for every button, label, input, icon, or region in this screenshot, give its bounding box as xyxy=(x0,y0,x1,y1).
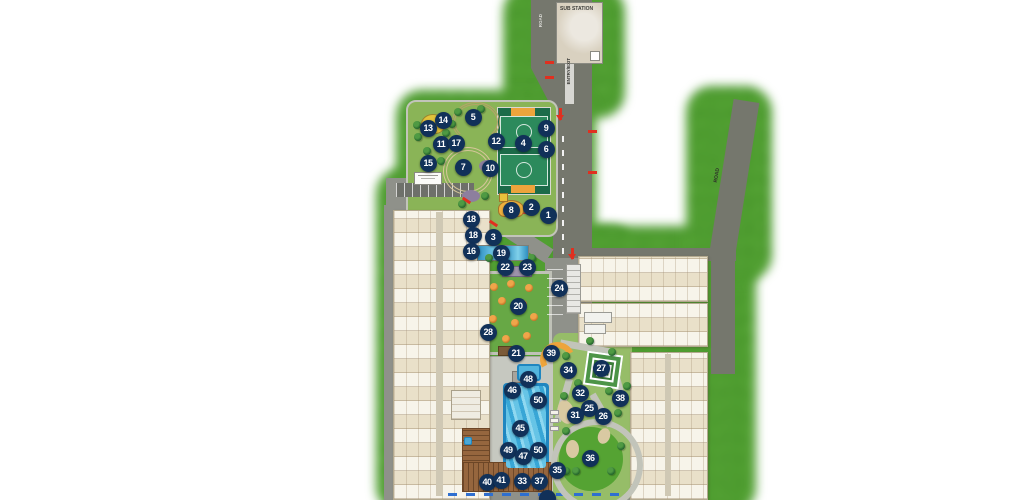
flowering-tree-icon xyxy=(502,335,510,343)
tree-icon xyxy=(623,382,631,390)
map-marker-4: 4 xyxy=(515,135,532,152)
map-marker-9: 9 xyxy=(538,120,555,137)
center-dashed-line xyxy=(562,128,564,254)
map-marker-17: 17 xyxy=(448,135,465,152)
east-corridor xyxy=(665,354,671,496)
map-marker-38: 38 xyxy=(612,390,629,407)
map-marker-35: 35 xyxy=(549,462,566,479)
tree-icon xyxy=(423,147,431,155)
map-marker-10: 10 xyxy=(482,160,499,177)
map-marker-37: 37 xyxy=(531,473,548,490)
clubhouse xyxy=(451,390,481,420)
tree-icon xyxy=(414,133,422,141)
map-marker-49: 49 xyxy=(500,442,517,459)
yellow-kiosk xyxy=(499,193,508,202)
tree-icon xyxy=(614,409,622,417)
court-cap xyxy=(511,185,535,193)
flowering-tree-icon xyxy=(489,315,497,323)
map-marker-3: 3 xyxy=(485,229,502,246)
map-marker-28: 28 xyxy=(480,324,497,341)
pool-lounger xyxy=(550,426,559,431)
basement-ramp xyxy=(566,264,581,314)
map-marker-32: 32 xyxy=(572,385,589,402)
sub-station-block: SUB STATION xyxy=(556,2,603,64)
flowering-tree-icon xyxy=(498,297,506,305)
flowering-tree-icon xyxy=(523,332,531,340)
building-north-east-a xyxy=(578,256,708,302)
red-dash xyxy=(545,61,554,64)
map-marker-34: 34 xyxy=(560,362,577,379)
map-marker-39: 39 xyxy=(543,345,560,362)
ramp-arrow xyxy=(571,248,574,259)
tree-icon xyxy=(454,108,462,116)
entry-exit-label: ENTRY/EXIT xyxy=(566,58,571,84)
vehicle xyxy=(584,324,606,334)
map-marker-36: 36 xyxy=(582,450,599,467)
flowering-tree-icon xyxy=(490,283,498,291)
map-marker-22: 22 xyxy=(497,259,514,276)
map-marker-45: 45 xyxy=(512,420,529,437)
spa-tub xyxy=(464,437,472,445)
road-top-label: ROAD xyxy=(538,14,543,27)
map-marker-31: 31 xyxy=(567,407,584,424)
tree-icon xyxy=(607,467,615,475)
tree-icon xyxy=(458,200,466,208)
map-marker-41: 41 xyxy=(493,472,510,489)
map-marker-33: 33 xyxy=(514,473,531,490)
map-marker-50: 50 xyxy=(530,392,547,409)
map-marker-13: 13 xyxy=(420,120,437,137)
tree-icon xyxy=(605,387,613,395)
tree-icon xyxy=(562,427,570,435)
tree-icon xyxy=(562,352,570,360)
map-marker-23: 23 xyxy=(519,259,536,276)
court-cap xyxy=(511,108,535,116)
red-dash xyxy=(545,76,554,79)
map-marker-7: 7 xyxy=(455,159,472,176)
map-marker-12: 12 xyxy=(488,133,505,150)
sub-station-label: SUB STATION xyxy=(560,6,605,12)
map-marker-21: 21 xyxy=(508,345,525,362)
red-dash xyxy=(588,171,597,174)
flowering-tree-icon xyxy=(525,284,533,292)
map-marker-8: 8 xyxy=(503,202,520,219)
map-marker-24: 24 xyxy=(551,280,568,297)
map-marker-2: 2 xyxy=(523,199,540,216)
sand-patch xyxy=(566,440,579,458)
tree-icon xyxy=(586,337,594,345)
site-sign-board xyxy=(414,172,442,185)
tree-icon xyxy=(608,348,616,356)
site-master-plan: SUB STATION ROAD ENTRY/EXIT ROAD xyxy=(0,0,1024,500)
map-marker-6: 6 xyxy=(538,141,555,158)
tree-icon xyxy=(437,157,445,165)
map-marker-20: 20 xyxy=(510,298,527,315)
tree-icon xyxy=(485,254,493,262)
map-marker-48: 48 xyxy=(520,371,537,388)
map-marker-26: 26 xyxy=(595,408,612,425)
map-marker-11: 11 xyxy=(433,136,450,153)
perimeter-road-lower xyxy=(711,252,735,374)
map-marker-16: 16 xyxy=(463,243,480,260)
map-marker-partial xyxy=(539,490,556,500)
map-marker-18: 18 xyxy=(465,227,482,244)
map-marker-14: 14 xyxy=(435,112,452,129)
tree-icon xyxy=(481,192,489,200)
map-marker-46: 46 xyxy=(504,382,521,399)
map-marker-27: 27 xyxy=(593,360,610,377)
map-marker-18: 18 xyxy=(463,211,480,228)
map-marker-15: 15 xyxy=(420,155,437,172)
map-marker-5: 5 xyxy=(465,109,482,126)
west-corridor xyxy=(436,212,443,496)
tree-icon xyxy=(617,442,625,450)
pool-lounger xyxy=(550,410,559,415)
flowering-tree-icon xyxy=(530,313,538,321)
tree-icon xyxy=(560,392,568,400)
map-marker-1: 1 xyxy=(540,207,557,224)
map-marker-47: 47 xyxy=(515,448,532,465)
entry-arrow xyxy=(559,108,562,120)
pool-lounger xyxy=(550,418,559,423)
court-circle xyxy=(516,162,532,178)
map-marker-50: 50 xyxy=(530,442,547,459)
tree-icon xyxy=(572,467,580,475)
red-dash xyxy=(588,130,597,133)
vehicle xyxy=(584,312,612,323)
substation-gate xyxy=(590,51,600,61)
flowering-tree-icon xyxy=(511,319,519,327)
flowering-tree-icon xyxy=(507,280,515,288)
